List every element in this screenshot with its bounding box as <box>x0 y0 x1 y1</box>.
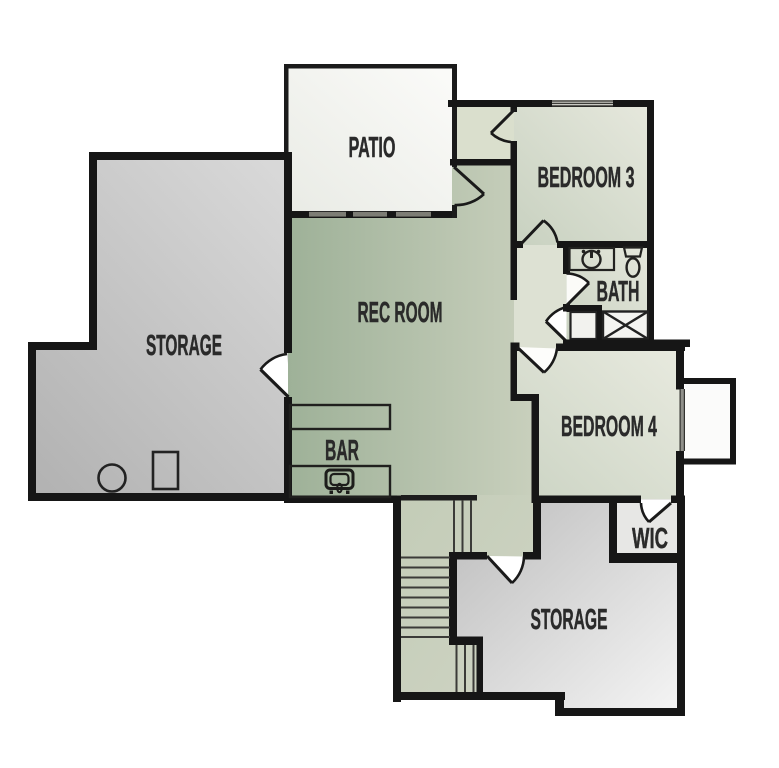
svg-text:BEDROOM 4: BEDROOM 4 <box>561 411 657 443</box>
svg-text:BEDROOM 3: BEDROOM 3 <box>538 162 635 194</box>
svg-text:BAR: BAR <box>325 435 359 467</box>
svg-text:BATH: BATH <box>597 276 640 308</box>
svg-text:PATIO: PATIO <box>349 132 396 164</box>
svg-text:REC ROOM: REC ROOM <box>358 297 443 329</box>
svg-text:STORAGE: STORAGE <box>531 604 608 636</box>
svg-text:STORAGE: STORAGE <box>146 330 222 362</box>
svg-text:WIC: WIC <box>632 523 668 555</box>
